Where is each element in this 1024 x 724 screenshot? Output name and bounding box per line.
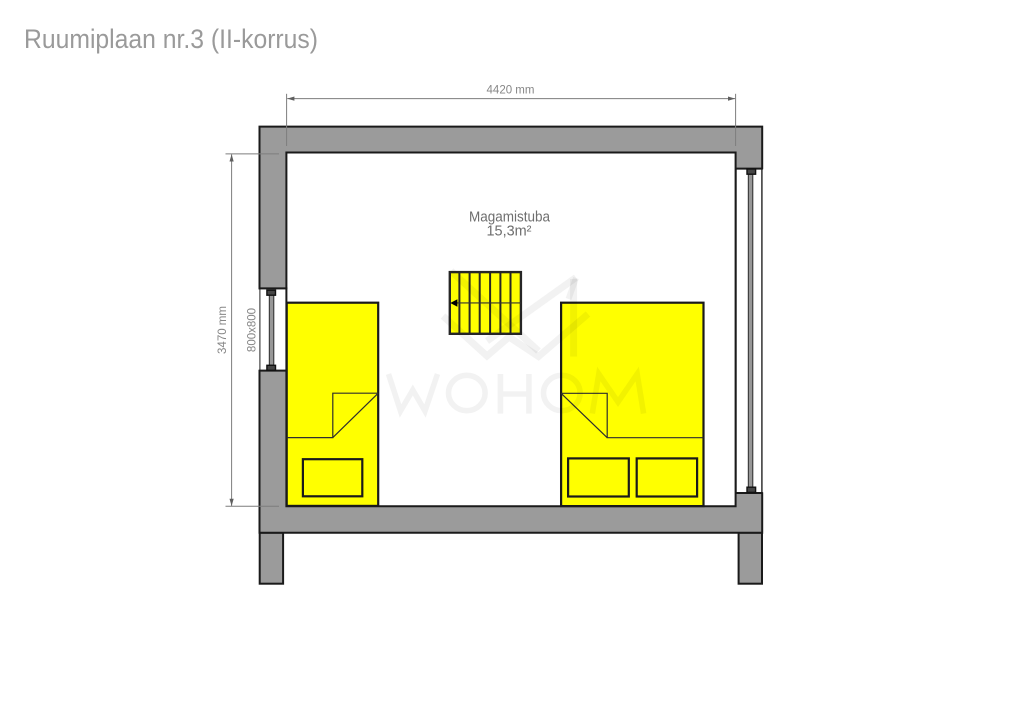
- svg-text:3470 mm: 3470 mm: [217, 306, 229, 354]
- svg-text:800x800: 800x800: [247, 308, 259, 352]
- svg-text:4420 mm: 4420 mm: [487, 85, 535, 97]
- svg-text:Ruumiplaan nr.3 (II-korrus): Ruumiplaan nr.3 (II-korrus): [24, 24, 318, 54]
- svg-text:15,3m²: 15,3m²: [487, 224, 532, 240]
